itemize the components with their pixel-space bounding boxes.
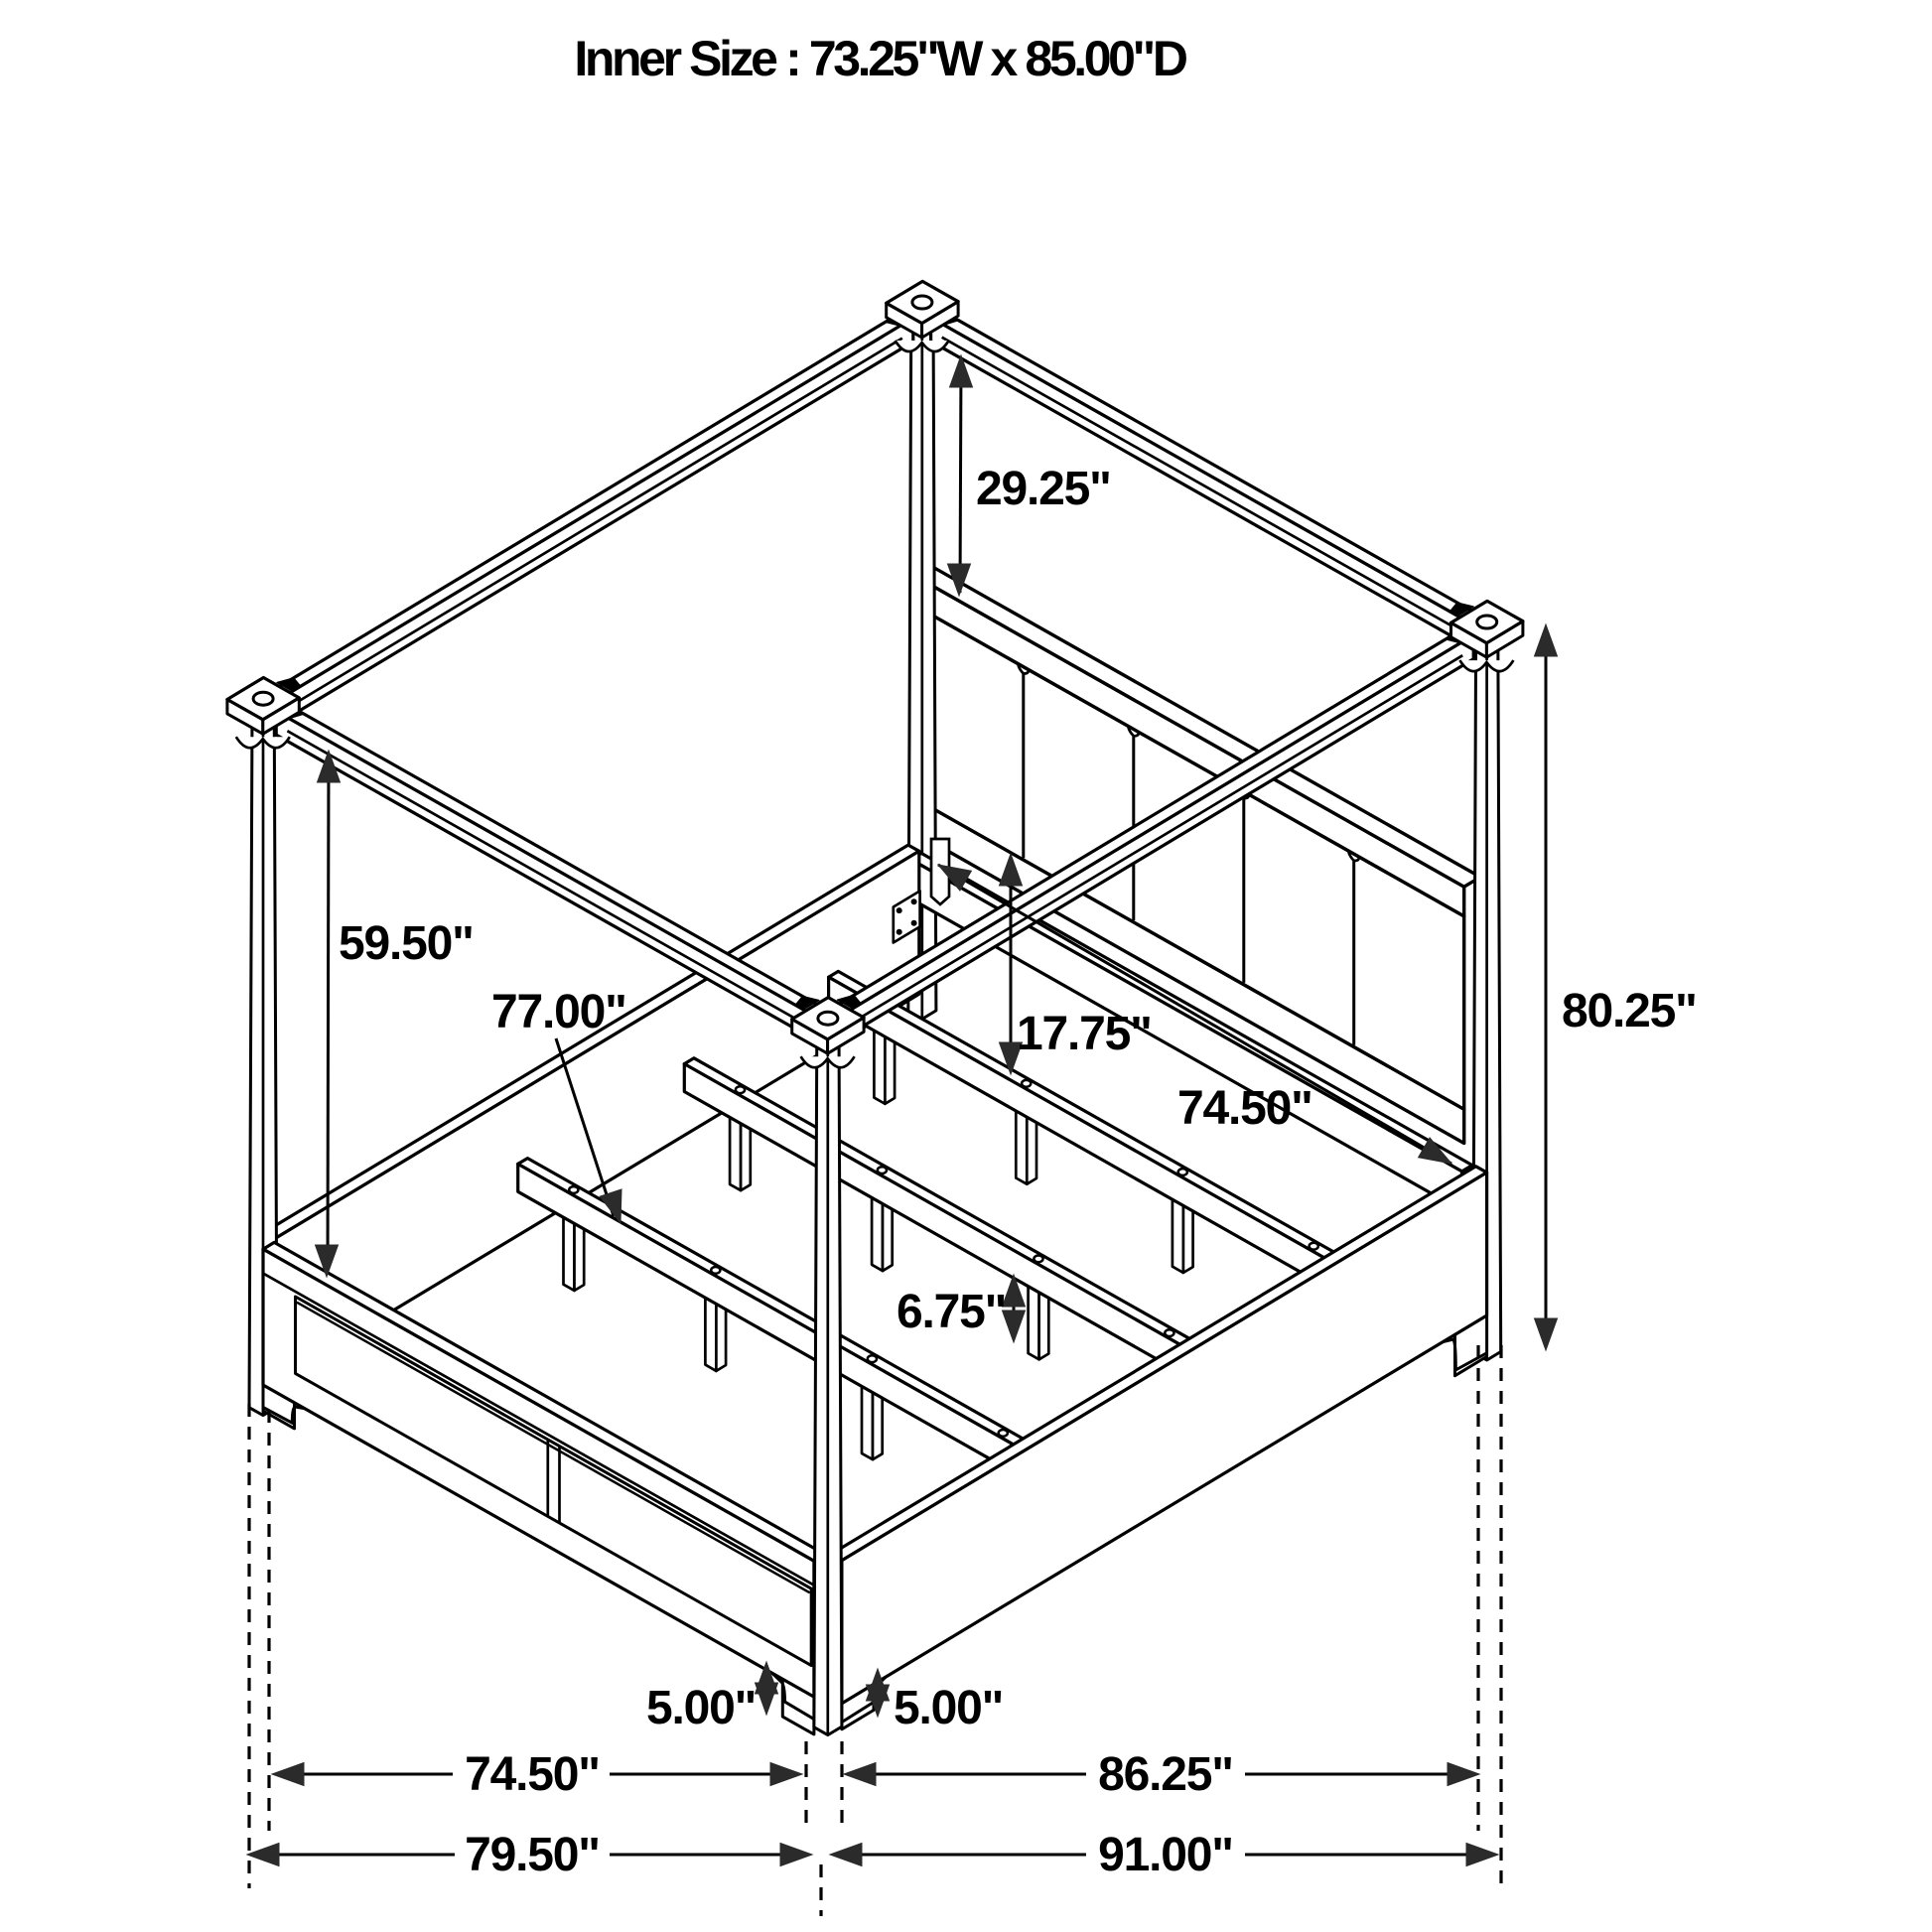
- svg-text:59.50": 59.50": [339, 917, 474, 970]
- svg-text:6.75": 6.75": [897, 1286, 1006, 1338]
- svg-text:86.25": 86.25": [1098, 1748, 1233, 1801]
- svg-text:80.25": 80.25": [1562, 985, 1697, 1037]
- svg-text:74.50": 74.50": [465, 1748, 600, 1801]
- svg-text:77.00": 77.00": [491, 986, 626, 1038]
- svg-text:79.50": 79.50": [465, 1829, 600, 1881]
- svg-text:17.75": 17.75": [1017, 1008, 1152, 1060]
- svg-text:74.50": 74.50": [1177, 1082, 1312, 1135]
- svg-text:Inner Size : 73.25"W x 85.00"D: Inner Size : 73.25"W x 85.00"D: [574, 31, 1186, 86]
- svg-text:91.00": 91.00": [1098, 1829, 1233, 1881]
- svg-text:5.00": 5.00": [894, 1682, 1003, 1734]
- svg-text:29.25": 29.25": [976, 463, 1111, 515]
- svg-text:5.00": 5.00": [646, 1682, 756, 1734]
